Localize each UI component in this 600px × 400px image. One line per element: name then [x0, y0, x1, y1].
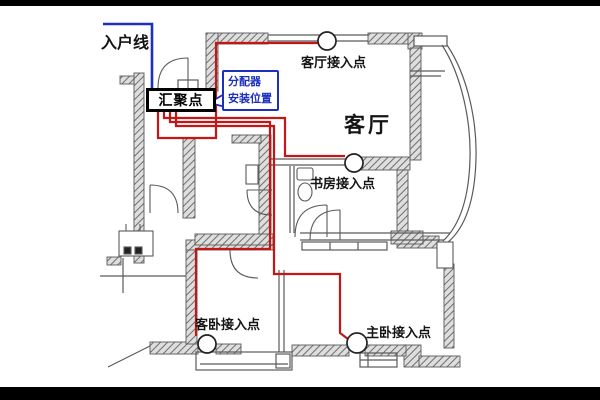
distributor-callout-line2: 安装位置	[228, 91, 272, 108]
living-room-access-label: 客厅接入点	[301, 52, 366, 71]
master-bedroom-access-label: 主卧接入点	[366, 322, 431, 341]
distributor-callout: 分配器 安装位置	[222, 70, 279, 111]
master-bedroom-access-point-marker	[347, 333, 367, 353]
living-room-access-point-marker	[318, 32, 336, 50]
living-room-label: 客厅	[344, 109, 392, 139]
incoming-line-label: 入户线	[101, 29, 149, 53]
balcony-pillar	[437, 242, 453, 268]
hub-box: 汇聚点	[146, 88, 216, 112]
floorplan-svg	[0, 0, 600, 400]
kitchen-door	[150, 185, 178, 213]
guest-bedroom-access-point-marker	[198, 335, 216, 353]
guest-bedroom-door	[230, 250, 258, 278]
screenshot-stage: 入户线 汇聚点 分配器 安装位置 客厅接入点 客厅 书房接入点 客卧接入点 主卧…	[0, 0, 600, 400]
distributor-callout-line1: 分配器	[228, 74, 272, 91]
study-access-label: 书房接入点	[310, 173, 375, 192]
guest-bedroom-access-label: 客卧接入点	[195, 314, 260, 333]
study-access-point-marker	[345, 154, 363, 172]
study-door	[310, 210, 340, 240]
